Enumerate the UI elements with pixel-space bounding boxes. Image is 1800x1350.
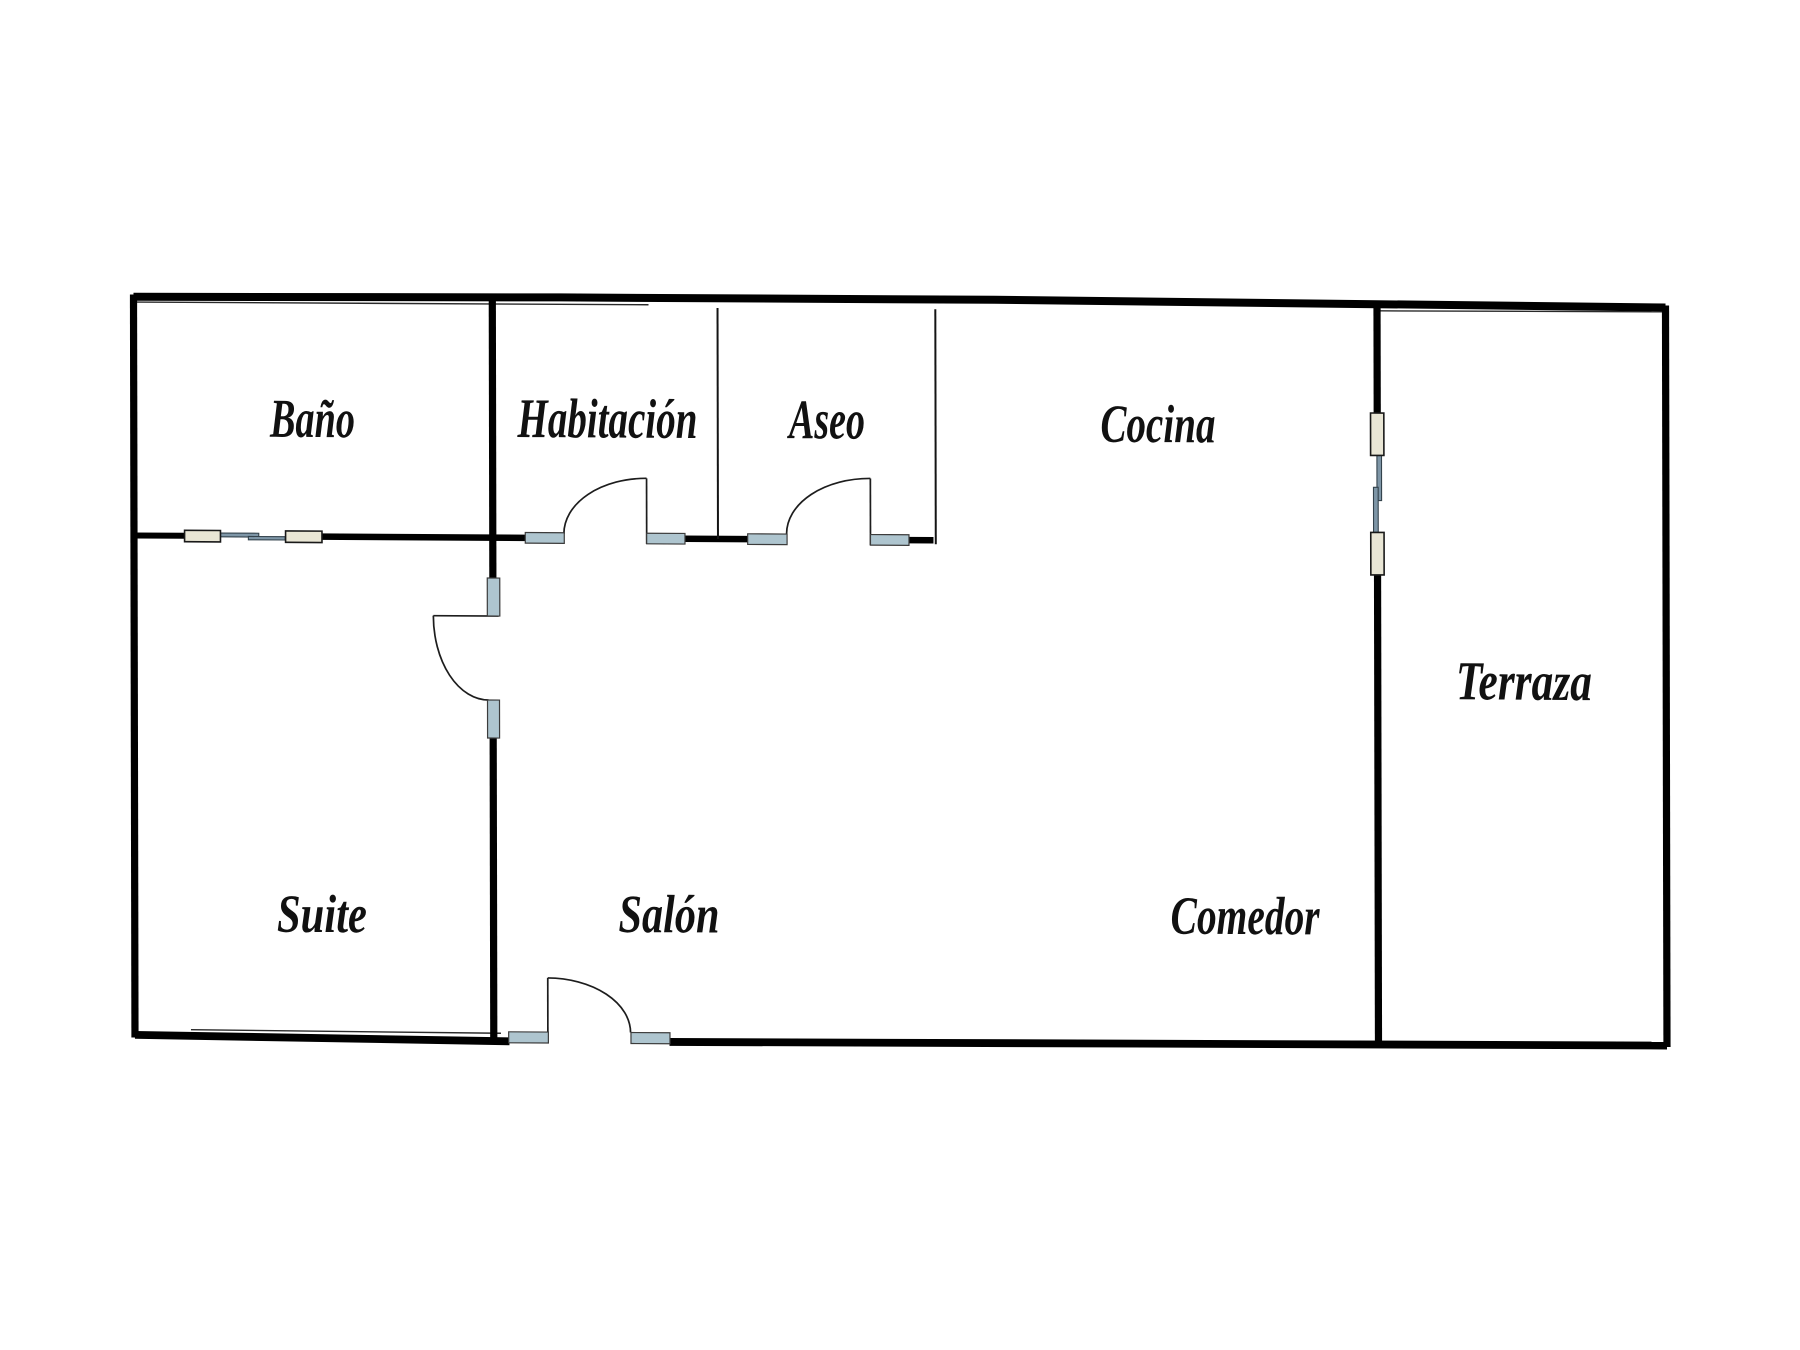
- svg-text:Salón: Salón: [618, 884, 719, 945]
- svg-text:Terraza: Terraza: [1456, 650, 1592, 712]
- svg-text:Aseo: Aseo: [787, 389, 865, 451]
- svg-text:Habitación: Habitación: [517, 388, 698, 451]
- svg-text:Baño: Baño: [269, 388, 355, 450]
- svg-text:Comedor: Comedor: [1171, 886, 1321, 947]
- svg-text:Cocina: Cocina: [1100, 394, 1215, 455]
- svg-text:Suite: Suite: [277, 884, 367, 945]
